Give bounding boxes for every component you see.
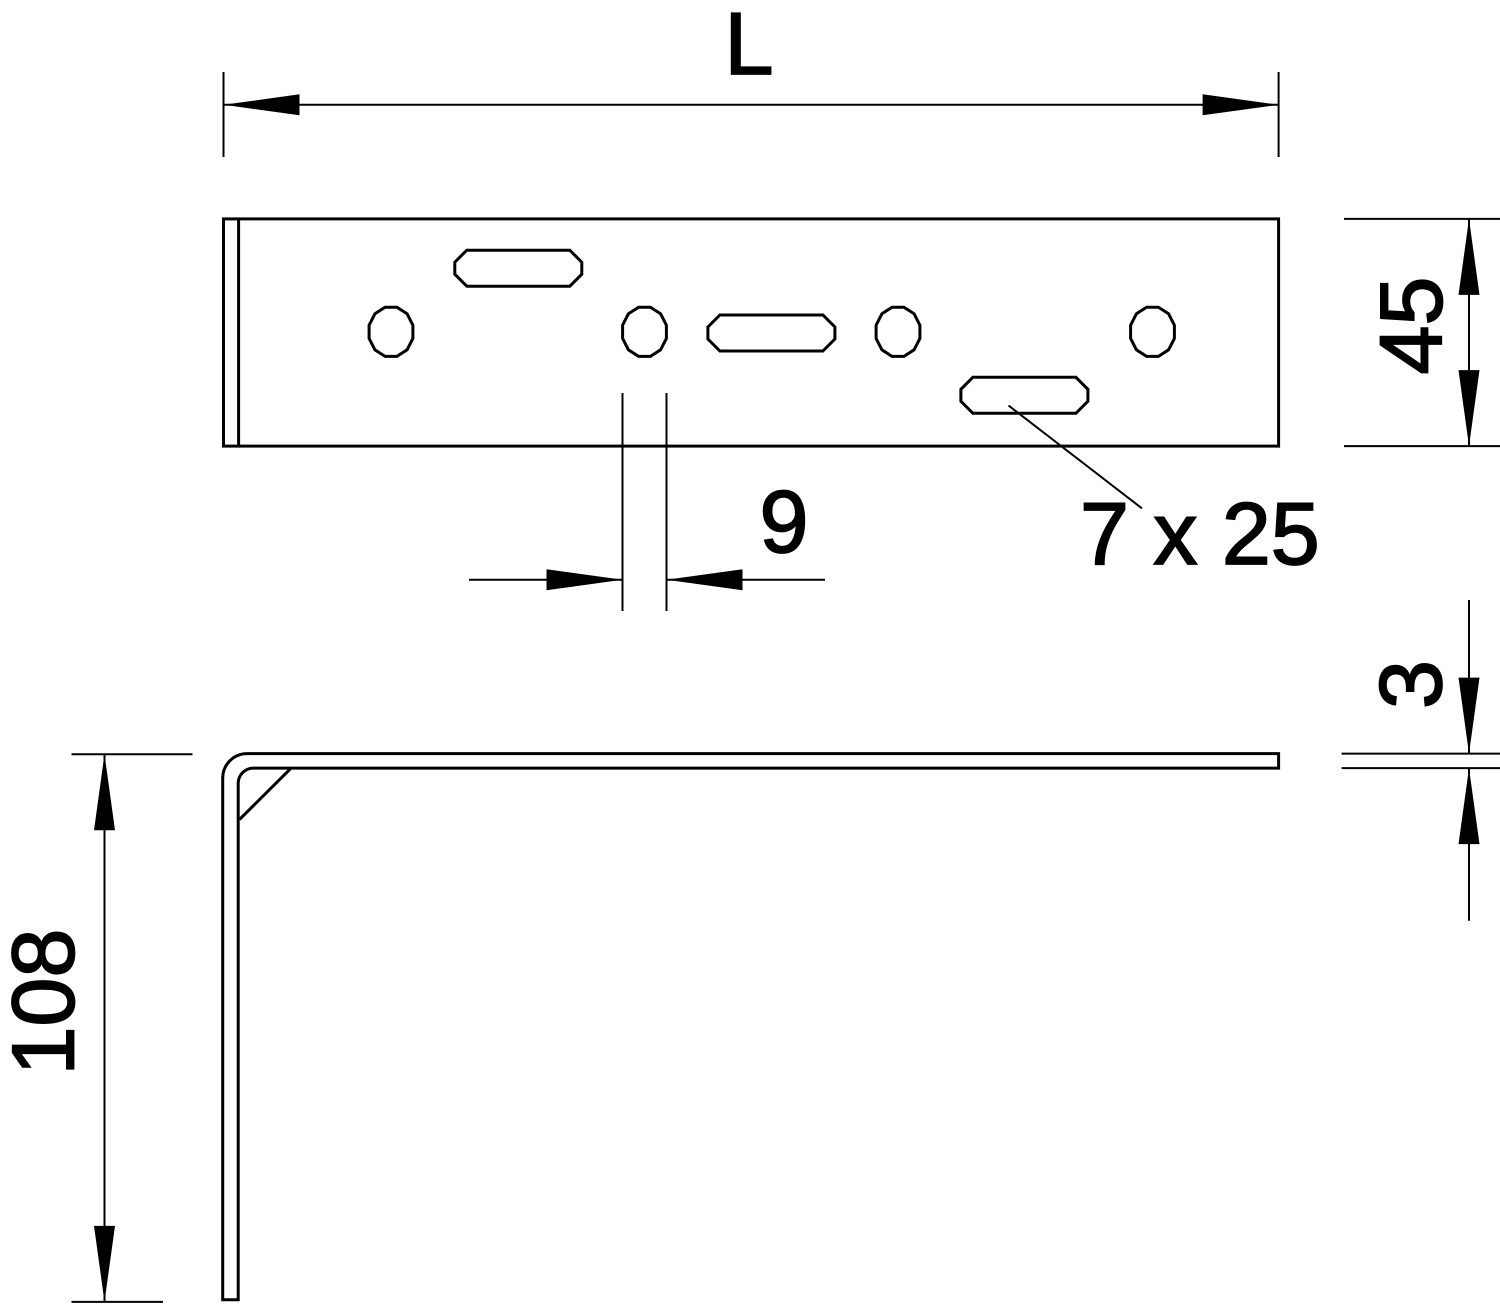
svg-text:7 x 25: 7 x 25 (1080, 484, 1320, 583)
svg-text:45: 45 (1362, 277, 1461, 375)
svg-text:108: 108 (0, 929, 93, 1076)
svg-text:L: L (725, 0, 774, 93)
svg-text:9: 9 (760, 472, 809, 571)
svg-text:3: 3 (1361, 660, 1460, 709)
